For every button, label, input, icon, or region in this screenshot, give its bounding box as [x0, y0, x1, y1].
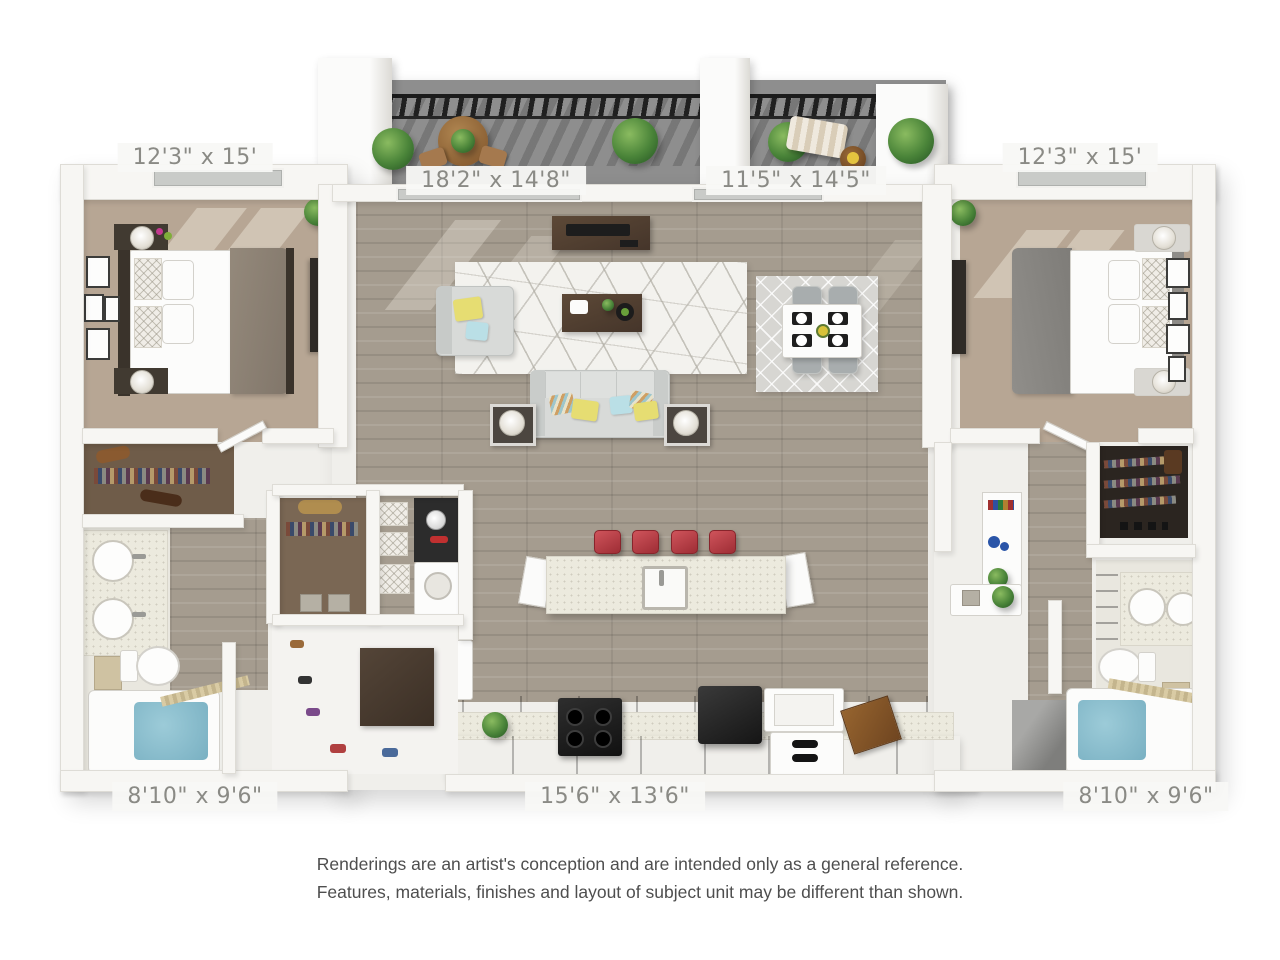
bed-left-accent-pillow-1: [134, 258, 162, 300]
pantry-basket-3: [378, 564, 410, 594]
plate-4: [832, 335, 843, 346]
vanity-left-faucet-2: [132, 612, 146, 617]
floor-plan-rendering: 12'3" x 15' 18'2" x 14'8" 11'5" x 14'5" …: [0, 0, 1280, 960]
wall-right-outer: [1192, 164, 1216, 792]
decor-green: [164, 232, 172, 240]
label-balcony-left-dimensions: 18'2" x 14'8": [406, 166, 586, 195]
balcony-plant-1: [372, 128, 414, 170]
bookshelf-books: [988, 500, 1014, 510]
washer-door: [424, 572, 452, 600]
hall-shelf-box: [962, 590, 980, 606]
bed-left-duvet: [230, 248, 288, 394]
bar-stool-2: [632, 530, 659, 554]
media-device: [620, 240, 638, 247]
wall-bedroom-left-south-b: [262, 428, 334, 444]
wall-closet-right-west: [1086, 442, 1100, 552]
wall-art-right-1: [1166, 258, 1190, 288]
wall-art-left-4: [86, 328, 110, 360]
wall-bedroom-left-south-a: [82, 428, 218, 444]
wall-bedroom-left-east: [318, 184, 348, 448]
decor-pink: [156, 228, 163, 235]
armchair-pillow-blue: [465, 321, 489, 341]
laundry-appliance: [414, 498, 458, 562]
bed-right-pillow-1: [1108, 260, 1140, 300]
pantry-basket-2: [378, 532, 408, 556]
bed-left-footboard: [286, 248, 294, 394]
hall-shelf-plant: [992, 586, 1014, 608]
hall-left-floor: [170, 518, 268, 690]
label-bathroom-left-dimensions: 8'10" x 9'6": [112, 782, 277, 811]
wall-left-outer: [60, 164, 84, 792]
washer-knob: [426, 510, 446, 530]
wall-art-right-2: [1168, 292, 1188, 320]
wall-hall-left-divider: [266, 490, 280, 624]
vanity-left-sink-2: [92, 598, 134, 640]
wall-bedroom-right-south-b: [1138, 428, 1194, 444]
wall-closet-right-south: [1086, 544, 1196, 558]
armchair-pillow-yellow: [453, 296, 484, 322]
sofa-pillow-yellow-2: [633, 400, 659, 421]
plate-1: [796, 313, 807, 324]
coffee-table-plant: [602, 299, 614, 311]
bathtub-left-water: [134, 702, 208, 760]
fruit-bowl: [847, 152, 859, 164]
wall-art-left-2: [84, 294, 104, 322]
balcony-plant-4: [888, 118, 934, 164]
bathtub-right-water: [1078, 700, 1146, 760]
wall-closet-left-south: [82, 514, 244, 528]
label-bedroom-right-dimensions: 12'3" x 15': [1003, 143, 1158, 172]
label-balcony-right-dimensions: 11'5" x 14'5": [706, 166, 886, 195]
bistro-table-plant: [451, 129, 475, 153]
bed-right-duvet: [1012, 248, 1072, 394]
bath-right-cabinet: [1096, 574, 1118, 640]
disclaimer-line-1: Renderings are an artist's conception an…: [0, 854, 1280, 875]
hall-shoes-2: [298, 676, 312, 684]
hall-shoes-4: [330, 744, 346, 753]
bed-left-pillow-1: [162, 260, 194, 300]
wall-bedroom-right-south-a: [950, 428, 1040, 444]
sofa-pillow-yellow-1: [571, 398, 600, 421]
closet-box-2: [328, 594, 350, 612]
wall-art-left-1: [86, 256, 110, 288]
wall-hall-right-divider: [934, 442, 952, 552]
coffee-table-magazine: [570, 300, 588, 314]
vanity-left-sink-1: [92, 540, 134, 582]
wall-art-right-3: [1166, 324, 1190, 354]
wall-bath-right-entry: [1048, 600, 1062, 694]
label-bathroom-right-dimensions: 8'10" x 9'6": [1063, 782, 1228, 811]
bookshelf-vase-1: [988, 536, 1000, 548]
entry-closet-door-panel: [774, 694, 834, 726]
vanity-left-faucet-1: [132, 554, 146, 559]
range-stove: [558, 698, 622, 756]
closet-left-clothes: [94, 468, 210, 484]
toilet-left-bowl: [136, 646, 180, 686]
burner-4: [594, 730, 612, 748]
wall-art-right-4: [1168, 356, 1186, 382]
burner-3: [566, 730, 584, 748]
toilet-right-tank: [1138, 652, 1156, 682]
bed-left-pillow-2: [162, 304, 194, 344]
bed-left-accent-pillow-2: [134, 306, 162, 348]
lamp-right-top: [1152, 226, 1176, 250]
burner-2: [594, 708, 612, 726]
label-kitchen-dimensions: 15'6" x 13'6": [525, 782, 705, 811]
refrigerator: [698, 686, 762, 744]
towel-left: [94, 656, 122, 690]
bowl-fruit: [621, 308, 629, 316]
vanity-right-sink-1: [1128, 588, 1166, 626]
tv-screen: [566, 224, 630, 236]
wall-bath-left-inner: [222, 642, 236, 774]
shoes-pair-1: [792, 740, 818, 748]
bedroom-right-plant: [950, 200, 976, 226]
laundry-red-item: [430, 536, 448, 543]
wall-closet-pantry-divider: [366, 490, 380, 622]
plate-3: [796, 335, 807, 346]
closet-right-bag: [1164, 450, 1182, 474]
label-bedroom-left-dimensions: 12'3" x 15': [118, 143, 273, 172]
bar-stool-1: [594, 530, 621, 554]
hall-shoes-5: [382, 748, 398, 757]
closet-right-shoes: [1120, 522, 1168, 530]
plate-2: [832, 313, 843, 324]
walkin-closet-left: [278, 498, 366, 616]
hall-shoes-1: [290, 640, 304, 648]
burner-1: [566, 708, 584, 726]
shoes-pair-2: [792, 754, 818, 762]
end-table-right-lamp: [673, 410, 699, 436]
lamp-left-top: [130, 226, 154, 250]
wall-closet-complex-bottom: [272, 614, 464, 626]
wall-bedroom-right-west: [922, 184, 952, 448]
lamp-left-bottom: [130, 370, 154, 394]
balcony-plant-2: [612, 118, 658, 164]
closet-box-1: [300, 594, 322, 612]
end-table-left-lamp: [499, 410, 525, 436]
bar-stool-3: [671, 530, 698, 554]
wall-art-left-3: [104, 296, 120, 322]
bar-stool-4: [709, 530, 736, 554]
armchair-back: [436, 286, 452, 354]
island-faucet: [659, 570, 664, 586]
pantry-basket-1: [378, 502, 408, 526]
island-sink: [642, 566, 688, 610]
bookshelf-vase-2: [1000, 542, 1009, 551]
kitchen-counter-plant: [482, 712, 508, 738]
walkin-closet-clothes: [286, 522, 358, 536]
bed-right-pillow-2: [1108, 304, 1140, 344]
disclaimer-line-2: Features, materials, finishes and layout…: [0, 882, 1280, 903]
hall-shoes-3: [306, 708, 320, 716]
walkin-closet-bag: [298, 500, 342, 514]
dining-centerpiece: [816, 324, 830, 338]
entry-rug-brown: [360, 648, 434, 726]
